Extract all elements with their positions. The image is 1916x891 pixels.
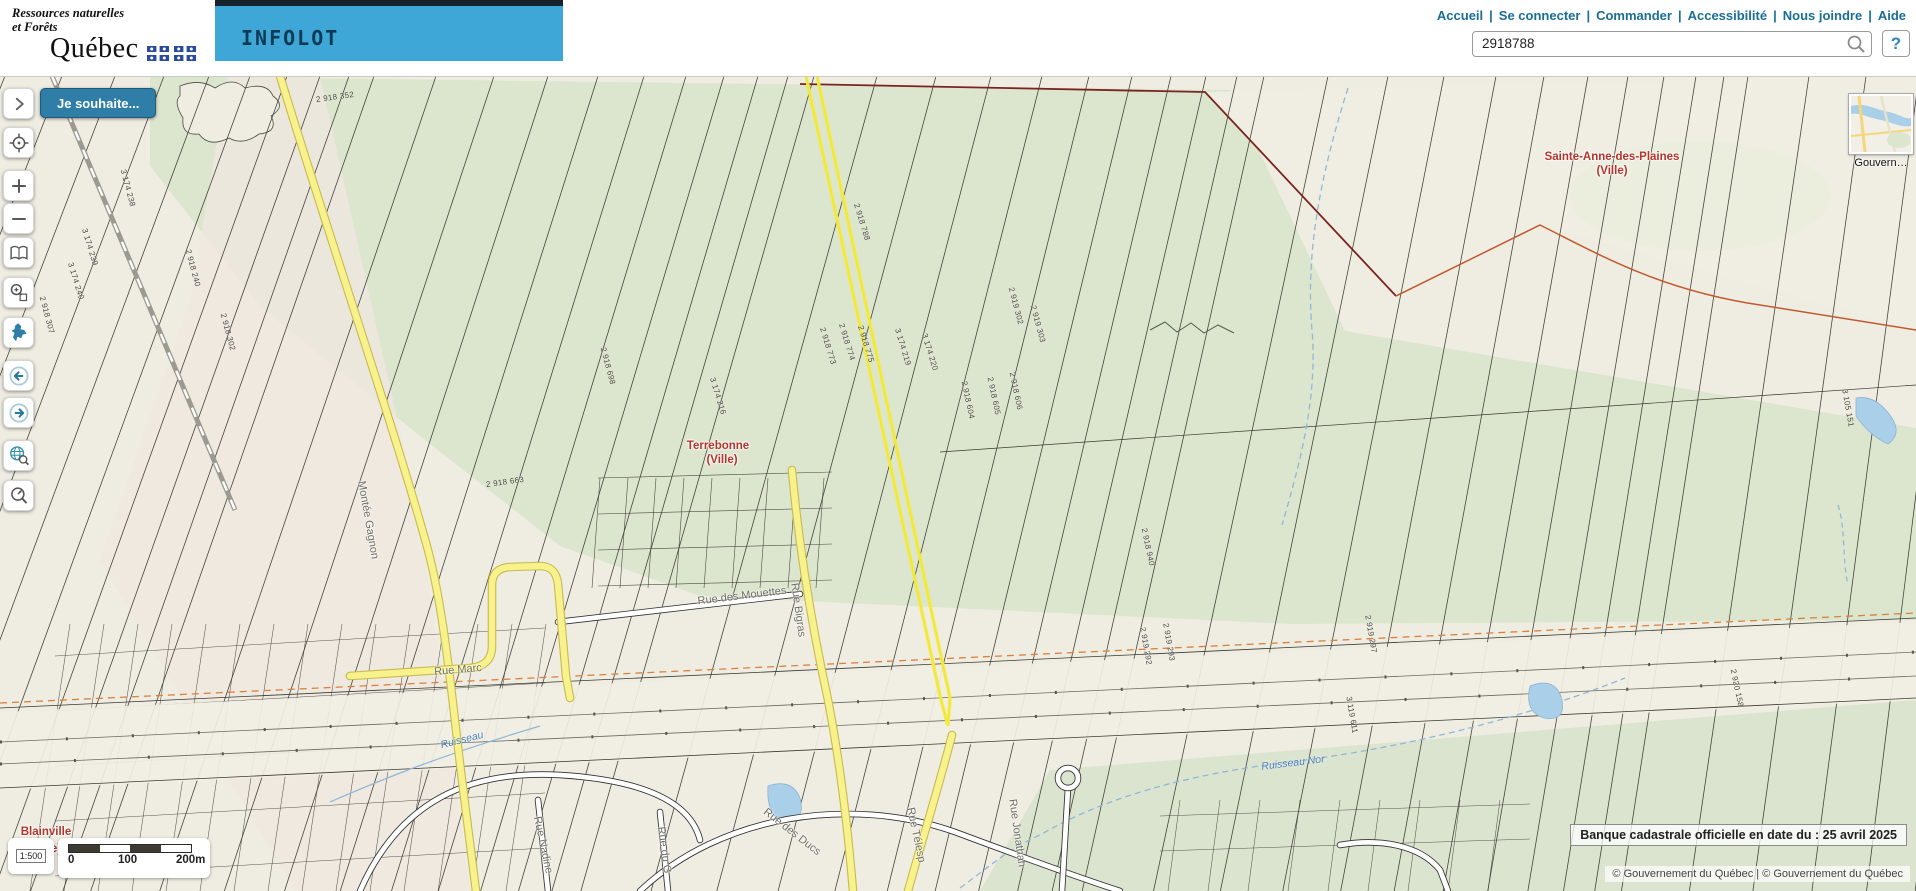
nav-separator: | xyxy=(1489,8,1493,23)
next-view-button[interactable] xyxy=(3,397,34,428)
cadastre-date-banner: Banque cadastrale officielle en date du … xyxy=(1570,824,1907,846)
chevron-right-icon xyxy=(7,92,31,116)
infolot-app: Ressources naturelles et Forêts Québec I… xyxy=(0,0,1916,891)
zoom-in-button[interactable] xyxy=(3,170,34,201)
previous-view-button[interactable] xyxy=(3,360,34,391)
map-graphics xyxy=(0,76,1916,891)
quebec-extent-button[interactable] xyxy=(3,317,34,348)
zoom-out-button[interactable] xyxy=(3,203,34,234)
crosshair-icon xyxy=(7,131,31,155)
scale-widget: 1:500 0 100 200m xyxy=(8,838,210,878)
overview-map[interactable]: Gouvern… xyxy=(1848,94,1914,169)
nav-link-aide[interactable]: Aide xyxy=(1878,8,1906,23)
help-button[interactable]: ? xyxy=(1882,30,1910,57)
panel-expand-button[interactable] xyxy=(3,88,34,119)
zoom-window-icon xyxy=(7,281,31,305)
locate-button[interactable] xyxy=(3,127,34,158)
nav-separator: | xyxy=(1678,8,1682,23)
nav-link-commander[interactable]: Commander xyxy=(1596,8,1672,23)
department-name-line2: et Forêts xyxy=(12,20,196,34)
nav-link-nous-joindre[interactable]: Nous joindre xyxy=(1783,8,1862,23)
minus-icon xyxy=(7,207,31,231)
scale-input[interactable]: 1:500 xyxy=(8,838,54,874)
nav-link-se-connecter[interactable]: Se connecter xyxy=(1499,8,1581,23)
top-nav: Accueil|Se connecter|Commander|Accessibi… xyxy=(1437,8,1906,23)
nav-link-accessibilit-[interactable]: Accessibilité xyxy=(1688,8,1768,23)
overview-attribution: Gouvern… xyxy=(1848,157,1914,169)
department-name-line1: Ressources naturelles xyxy=(12,6,196,20)
overview-map-image[interactable] xyxy=(1849,94,1913,154)
app-title: INFOLOT xyxy=(241,26,339,50)
quebec-government-logo[interactable]: Ressources naturelles et Forêts Québec xyxy=(12,6,196,63)
nav-separator: | xyxy=(1868,8,1872,23)
globe-search-icon xyxy=(7,444,31,468)
quebec-wordmark: Québec xyxy=(50,35,139,63)
legend-button[interactable] xyxy=(3,237,34,268)
nav-separator: | xyxy=(1773,8,1777,23)
quebec-icon xyxy=(7,321,31,345)
banner-top-strip xyxy=(215,0,563,6)
arrow-right-circle-icon xyxy=(7,401,31,425)
app-title-banner: INFOLOT xyxy=(215,0,563,61)
je-souhaite-button[interactable]: Je souhaite... xyxy=(40,88,156,118)
scale-bar: 0 100 200m xyxy=(58,838,210,878)
copyright-notice: © Gouvernement du Québec | © Gouvernemen… xyxy=(1605,866,1910,882)
zoom-window-button[interactable] xyxy=(3,277,34,308)
nav-link-accueil[interactable]: Accueil xyxy=(1437,8,1483,23)
quebec-flag-icon xyxy=(147,46,196,61)
book-icon xyxy=(7,241,31,265)
search-input[interactable] xyxy=(1472,31,1872,57)
zoom-scale-icon xyxy=(7,484,31,508)
map-canvas[interactable]: Sainte-Anne-des-Plaines(Ville)Terrebonne… xyxy=(0,76,1916,891)
plus-icon xyxy=(7,174,31,198)
search-icon[interactable] xyxy=(1846,34,1866,54)
nav-separator: | xyxy=(1586,8,1590,23)
arrow-left-circle-icon xyxy=(7,364,31,388)
global-search-button[interactable] xyxy=(3,440,34,471)
app-header: Ressources naturelles et Forêts Québec I… xyxy=(0,0,1916,77)
search-box xyxy=(1472,31,1872,57)
zoom-scale-button[interactable] xyxy=(3,480,34,511)
